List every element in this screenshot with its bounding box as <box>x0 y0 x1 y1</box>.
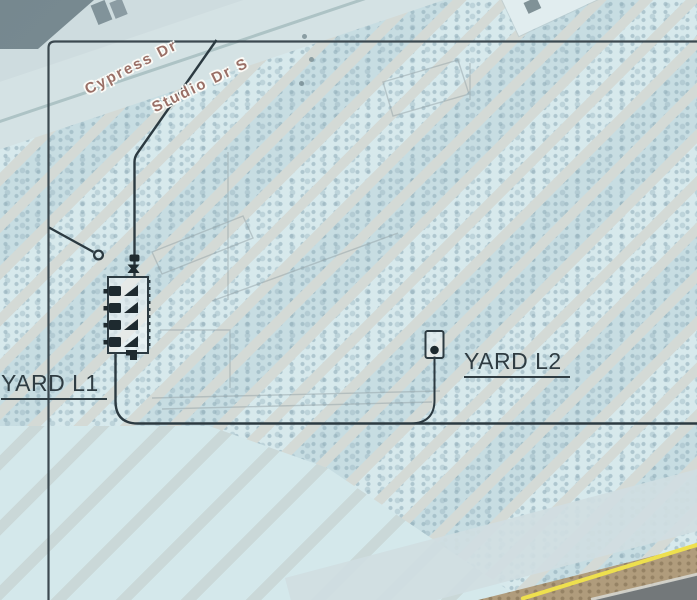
yard-l2-switch-symbol[interactable] <box>426 331 444 358</box>
yard-l1-label: YARD L1 <box>1 371 107 400</box>
substation-structure-symbol[interactable] <box>104 277 150 360</box>
yard-l2-label: YARD L2 <box>464 349 570 378</box>
yard-l2-branch-line[interactable] <box>411 356 435 424</box>
map-canvas[interactable]: Cypress Dr Studio Dr S YARD L1 YARD L2 <box>0 0 697 600</box>
service-pothead-symbol[interactable] <box>94 251 103 260</box>
cad-sketch-lines <box>152 60 470 409</box>
service-lateral-line[interactable] <box>49 228 94 253</box>
yard-feeder-line[interactable] <box>116 353 697 424</box>
